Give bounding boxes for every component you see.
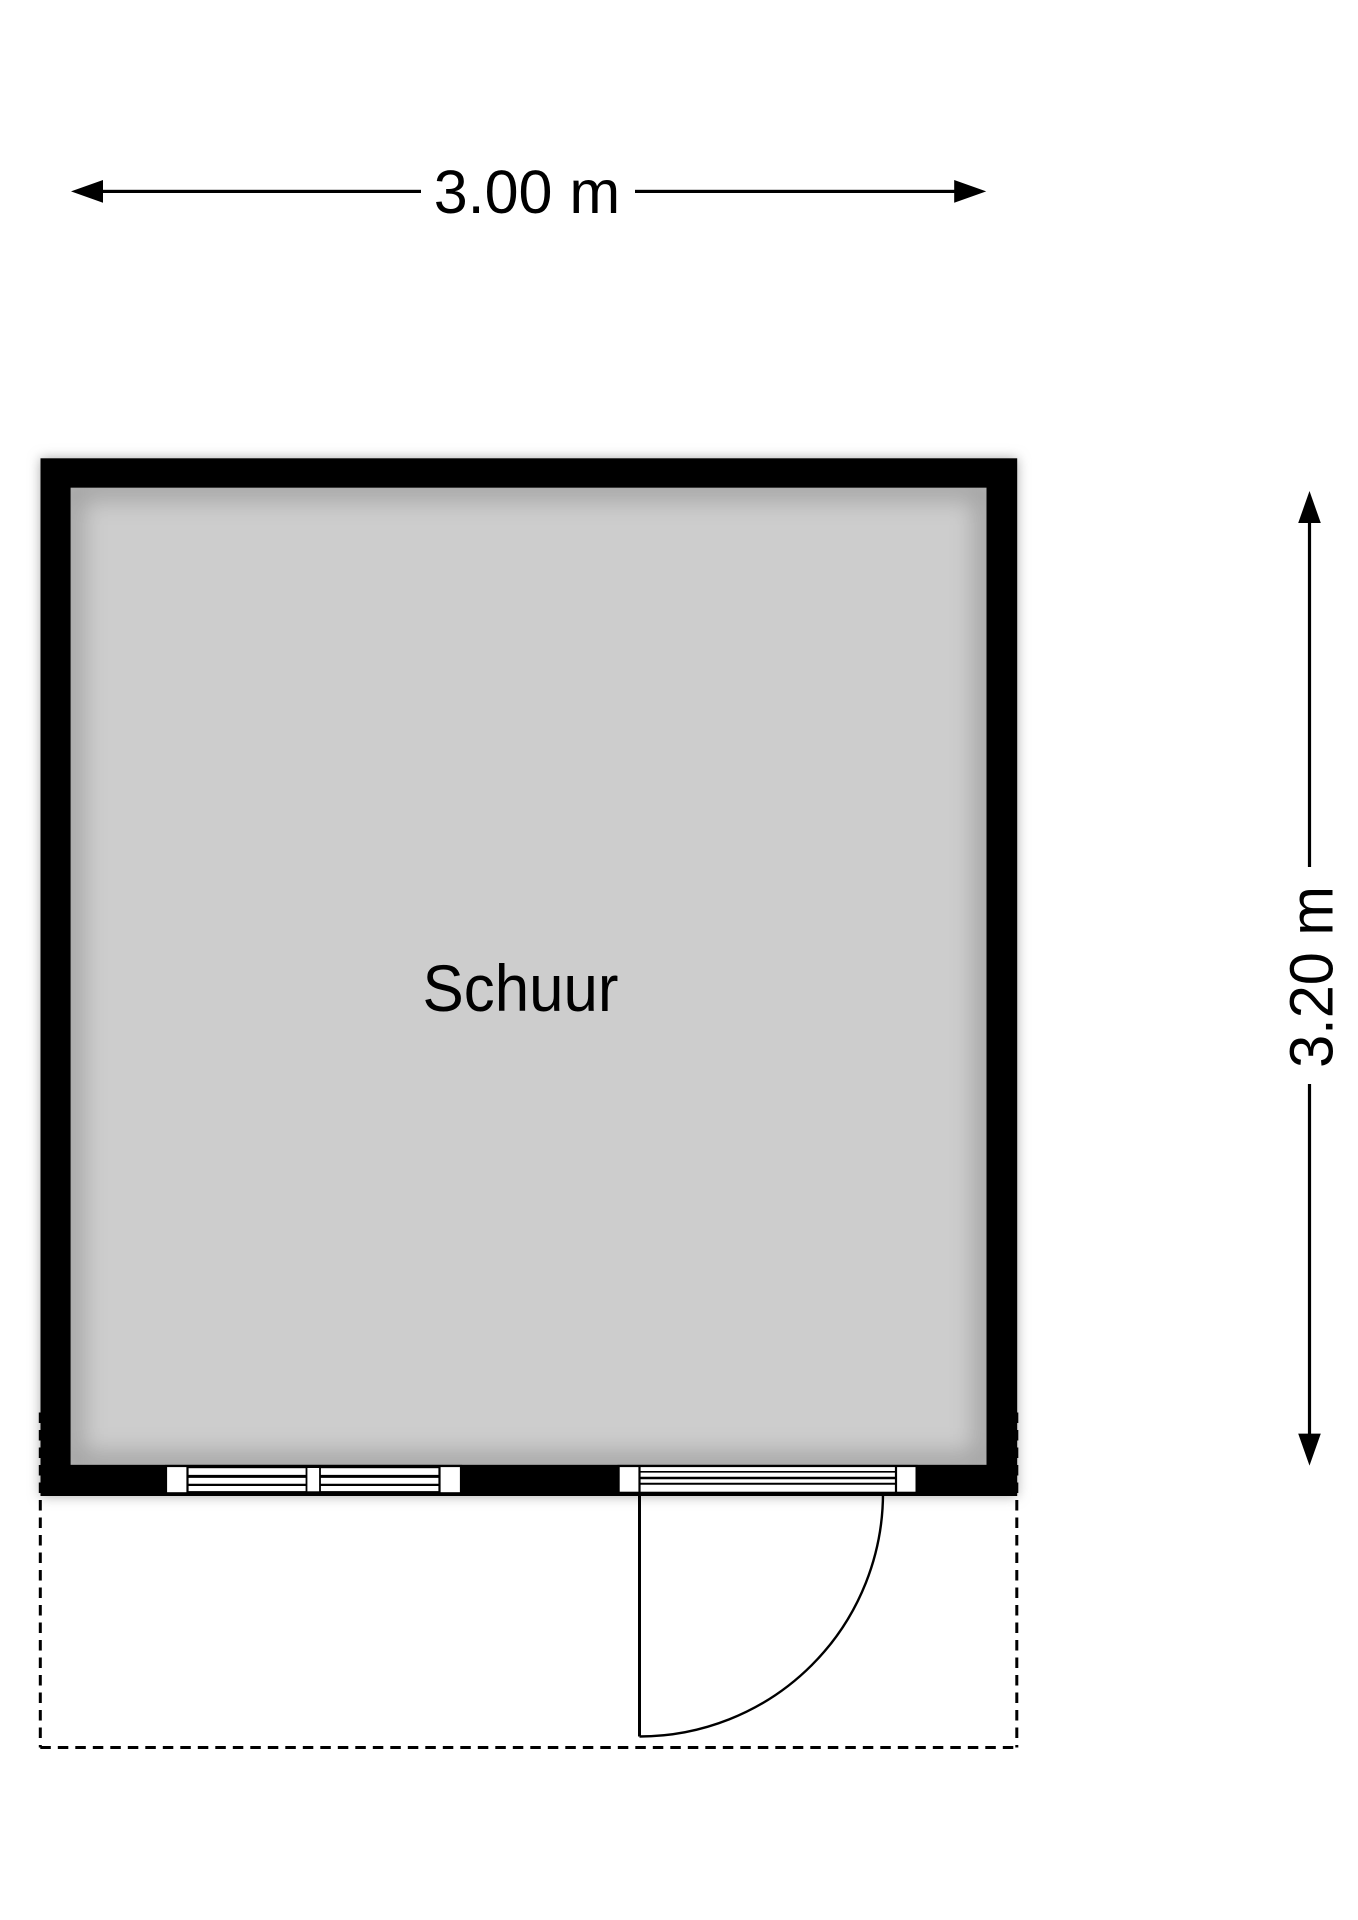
svg-text:Schuur: Schuur — [423, 951, 619, 1025]
svg-text:3.20 m: 3.20 m — [1277, 886, 1346, 1068]
svg-text:3.00 m: 3.00 m — [434, 158, 621, 226]
